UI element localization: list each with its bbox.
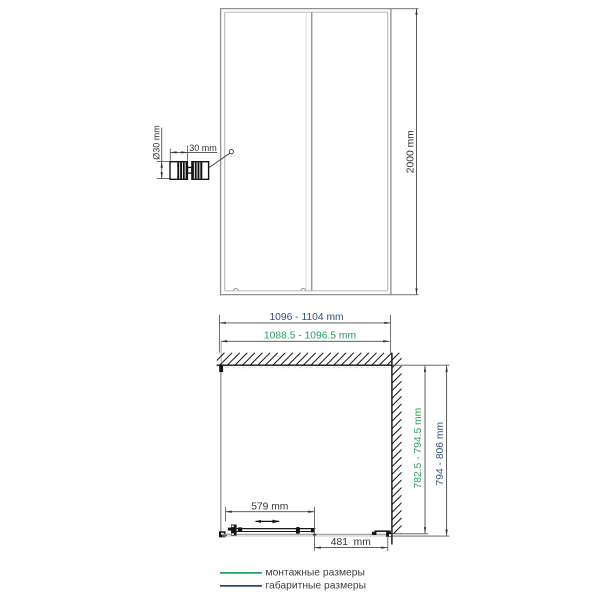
svg-text:Ø30 mm: Ø30 mm — [152, 125, 162, 160]
svg-text:монтажные размеры: монтажные размеры — [266, 568, 365, 579]
svg-text:481 mm: 481 mm — [331, 537, 371, 548]
svg-text:2000 mm: 2000 mm — [406, 130, 417, 173]
svg-text:1096 - 1104 mm: 1096 - 1104 mm — [269, 312, 343, 323]
svg-text:габаритные размеры: габаритные размеры — [266, 580, 367, 592]
svg-text:794 - 806 mm: 794 - 806 mm — [435, 422, 446, 486]
svg-text:782.5 - 794.5 mm: 782.5 - 794.5 mm — [413, 408, 424, 489]
svg-text:1088.5 - 1096.5 mm: 1088.5 - 1096.5 mm — [264, 331, 356, 342]
svg-text:579 mm: 579 mm — [251, 501, 288, 512]
svg-text:30 mm: 30 mm — [189, 143, 217, 153]
